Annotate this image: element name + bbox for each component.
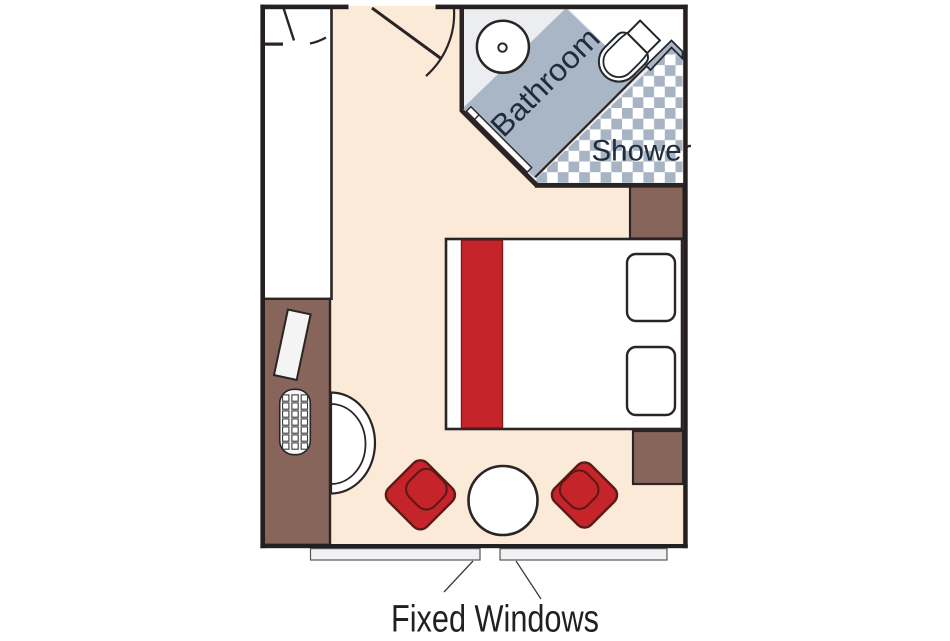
svg-text:Shower: Shower (592, 135, 692, 168)
svg-text:Fixed Windows: Fixed Windows (391, 599, 599, 637)
